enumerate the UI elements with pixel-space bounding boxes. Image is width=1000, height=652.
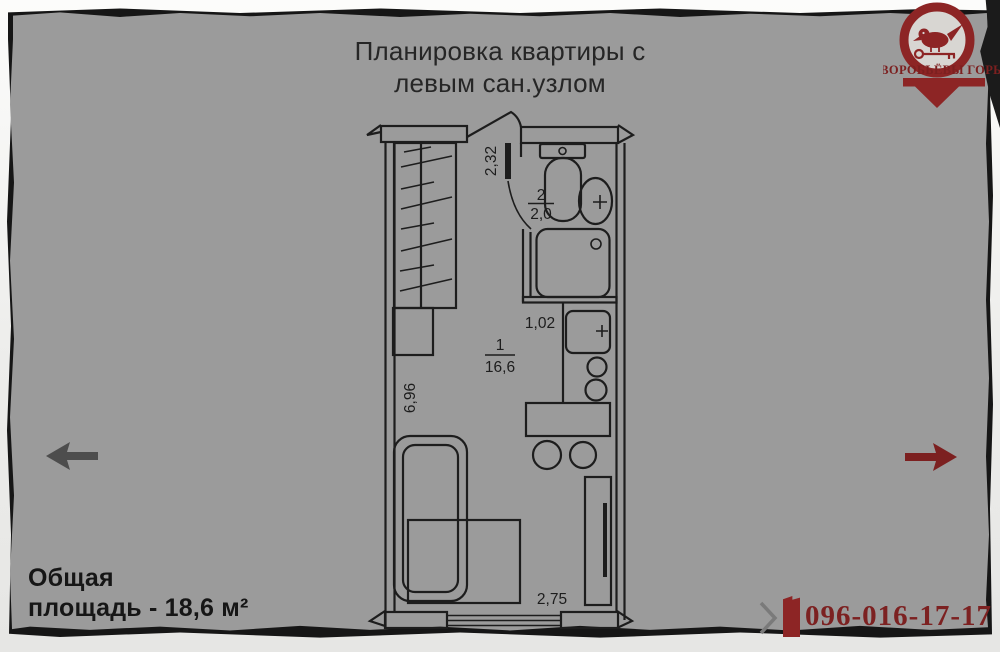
plan-labels: 2,32 2 2,0 1,02 1 16,6 6,96 2,75 (402, 146, 567, 608)
phone-number: 096-016-17-17 (805, 600, 992, 633)
prev-slide-button[interactable] (42, 436, 100, 476)
page-title-line2: левым сан.узлом (394, 68, 606, 98)
dim-hall-width: 2,32 (483, 146, 500, 176)
dim-room-width: 2,75 (537, 591, 567, 608)
logo-name: ВОРОБЬЁВЫ ГОРЫ (883, 63, 1000, 77)
entrance-door (467, 112, 521, 137)
bathroom-number: 2 (537, 187, 546, 204)
company-logo: ВОРОБЬЁВЫ ГОРЫ (883, 0, 1000, 112)
page-title-line1: Планировка квартиры с (355, 36, 646, 66)
slide-canvas: Планировка квартиры с левым сан.узлом (0, 0, 1000, 652)
total-area-note: Общая площадь - 18,6 м² (28, 563, 249, 623)
corner-sofa (394, 436, 520, 603)
logo-pin-point (915, 87, 959, 109)
logo-band (903, 78, 985, 87)
chevron-right-icon (758, 597, 778, 637)
kitchen-sink (566, 311, 610, 353)
door-icon (783, 596, 800, 637)
phone-block: 096-016-17-17 (758, 596, 992, 637)
window (447, 616, 561, 626)
page-title: Планировка квартиры с левым сан.узлом (0, 36, 1000, 100)
shower-tray (537, 229, 610, 297)
wardrobe (585, 477, 611, 605)
total-area-line1: Общая (28, 564, 114, 592)
total-area-line2: площадь - 18,6 м² (28, 594, 249, 622)
next-slide-button[interactable] (903, 437, 961, 477)
closet (393, 143, 456, 355)
dim-kitchen-width: 1,02 (525, 315, 555, 332)
washbasin (579, 178, 612, 224)
stools (533, 441, 596, 469)
arrow-left-icon (46, 442, 98, 470)
stove-burners (586, 358, 607, 401)
main-room-area: 16,6 (485, 359, 515, 376)
arrow-right-icon (905, 443, 957, 471)
floorplan-drawing: 2,32 2 2,0 1,02 1 16,6 6,96 2,75 (355, 95, 645, 650)
main-room-number: 1 (496, 337, 505, 354)
bathroom-area: 2,0 (530, 206, 552, 223)
dim-room-length: 6,96 (402, 383, 419, 413)
